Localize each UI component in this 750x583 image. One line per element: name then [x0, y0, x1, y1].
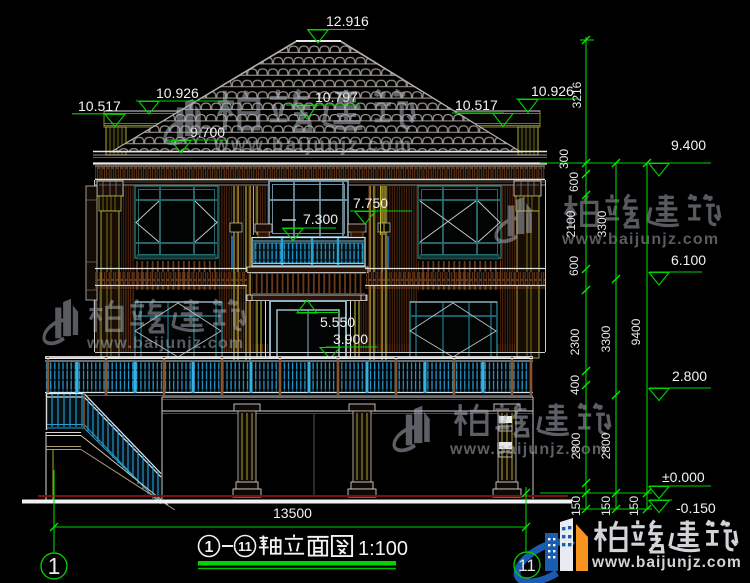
svg-text:±0.000: ±0.000: [662, 469, 705, 485]
svg-text:2800: 2800: [569, 432, 583, 459]
svg-text:3.900: 3.900: [333, 331, 368, 347]
svg-text:150: 150: [599, 496, 613, 516]
svg-text:2.800: 2.800: [672, 368, 707, 384]
svg-text:400: 400: [568, 375, 582, 395]
svg-text:600: 600: [567, 256, 581, 276]
svg-text:www.baijunjz.com: www.baijunjz.com: [213, 135, 413, 156]
svg-text:11: 11: [238, 539, 252, 554]
svg-text:www.baijunjz.com: www.baijunjz.com: [561, 231, 719, 248]
svg-text:1: 1: [205, 539, 214, 556]
svg-text:300: 300: [557, 149, 571, 169]
svg-text:2100: 2100: [564, 210, 578, 237]
svg-text:9400: 9400: [629, 318, 643, 345]
svg-text:-0.150: -0.150: [676, 500, 716, 516]
svg-text:2300: 2300: [568, 328, 582, 355]
svg-text:10.926: 10.926: [531, 83, 574, 99]
svg-text:9.400: 9.400: [671, 137, 706, 153]
svg-text:13500: 13500: [273, 505, 312, 521]
svg-text:3300: 3300: [595, 210, 609, 237]
svg-text:150: 150: [627, 496, 641, 516]
svg-text:www.baijunjz.com: www.baijunjz.com: [449, 441, 607, 458]
svg-text:10.517: 10.517: [455, 97, 498, 113]
svg-text:6.100: 6.100: [671, 252, 706, 268]
svg-text:10.517: 10.517: [78, 98, 121, 114]
svg-text:600: 600: [567, 172, 581, 192]
svg-text:7.300: 7.300: [303, 211, 338, 227]
svg-text:www.baijunjz.com: www.baijunjz.com: [591, 554, 742, 571]
svg-text:12.916: 12.916: [326, 13, 369, 29]
svg-text:1: 1: [48, 553, 61, 579]
svg-text:150: 150: [569, 496, 583, 516]
svg-text:7.750: 7.750: [353, 195, 388, 211]
svg-text:3300: 3300: [599, 325, 613, 352]
svg-text:3216: 3216: [570, 81, 584, 108]
svg-text:1:100: 1:100: [358, 538, 408, 560]
svg-text:10.926: 10.926: [156, 85, 199, 101]
svg-text:11: 11: [518, 556, 536, 575]
svg-text:www.baijunjz.com: www.baijunjz.com: [86, 335, 244, 352]
svg-text:5.550: 5.550: [320, 314, 355, 330]
svg-text:2800: 2800: [599, 432, 613, 459]
